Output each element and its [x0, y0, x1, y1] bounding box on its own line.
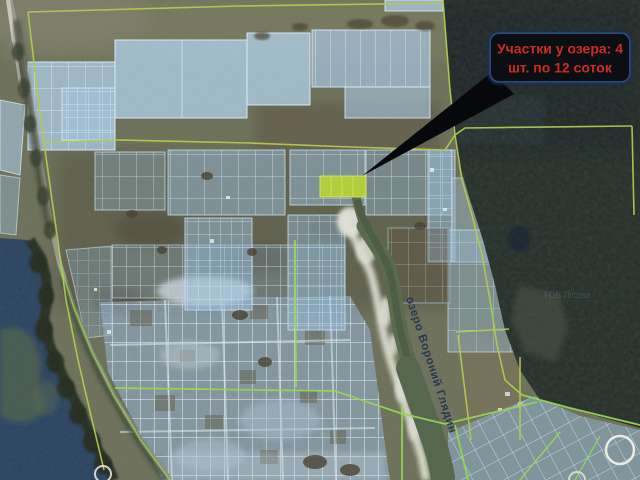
svg-text:шт. по 12 соток: шт. по 12 соток [508, 60, 613, 76]
svg-text:Участки у озера: 4: Участки у озера: 4 [497, 41, 623, 57]
